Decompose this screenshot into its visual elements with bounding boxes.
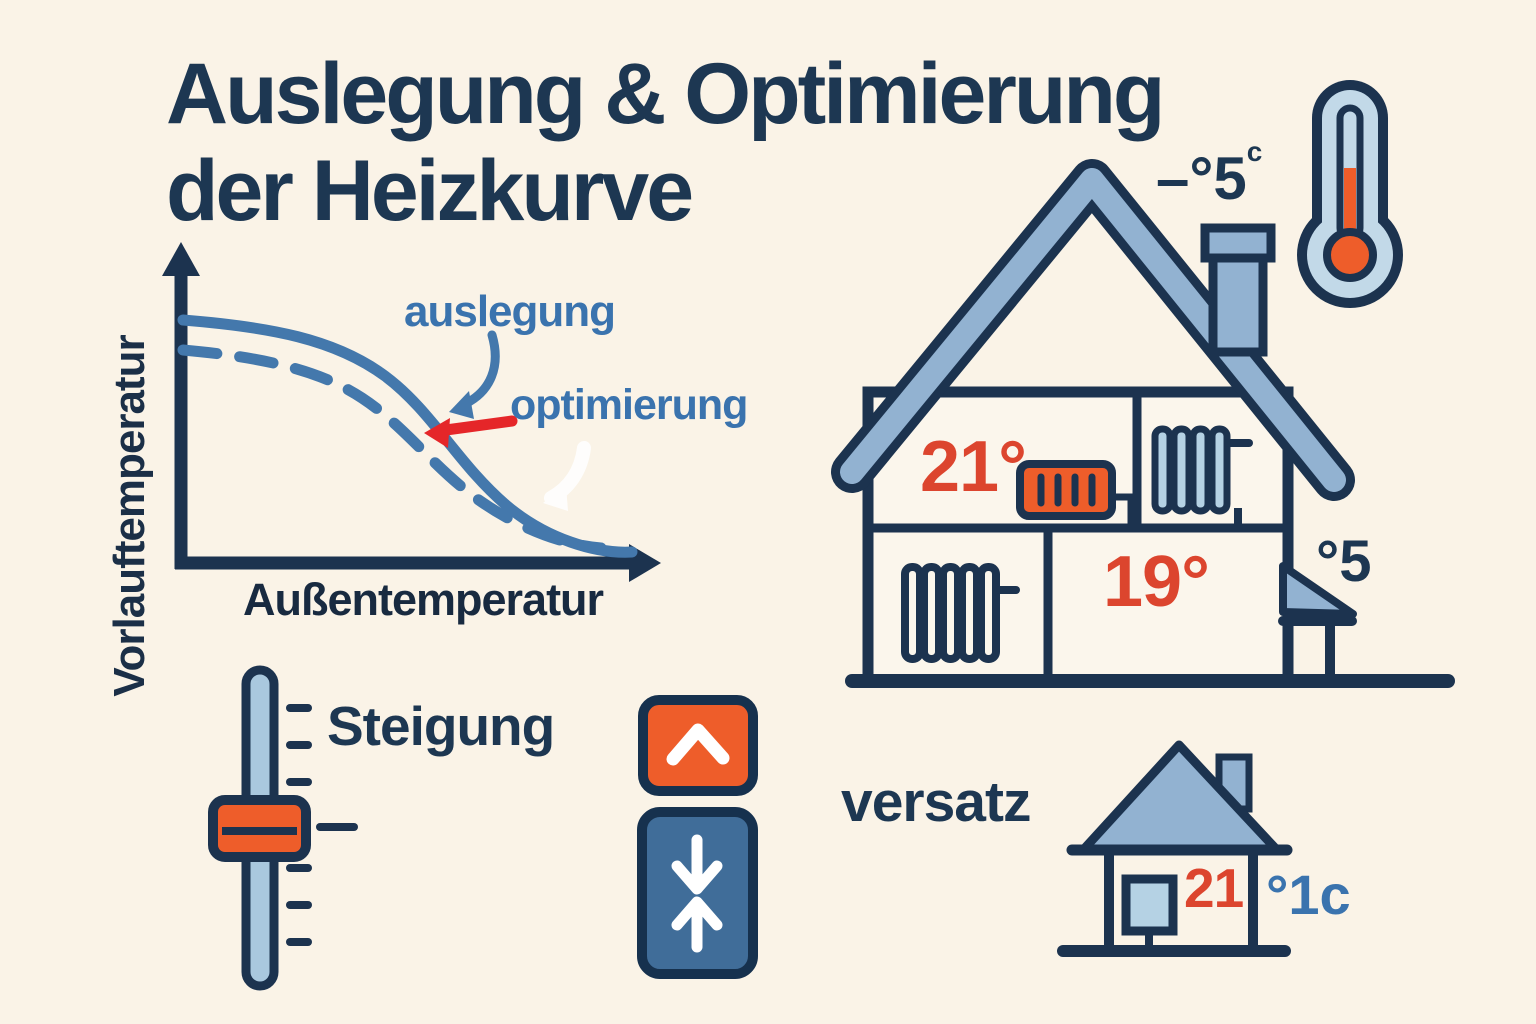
radiator-outline-icon xyxy=(905,567,1016,659)
chimney xyxy=(1205,228,1271,352)
downstairs-temp-label: 19° xyxy=(1103,541,1209,623)
curve-label-optimierung: optimierung xyxy=(510,381,747,430)
offset-button[interactable] xyxy=(642,812,753,974)
upstairs-temp-label: 21° xyxy=(920,426,1026,508)
outside-temp-unit: c xyxy=(1247,136,1263,167)
thermometer-icon xyxy=(1297,80,1403,308)
steigung-label: Steigung xyxy=(327,694,554,758)
increase-button[interactable] xyxy=(643,700,753,791)
curve-label-auslegung: auslegung xyxy=(404,287,615,337)
slider-handle[interactable] xyxy=(213,800,306,857)
offset-indoor-temp-label: 21 xyxy=(1184,856,1243,920)
outside-temp-label: –°5c xyxy=(1156,136,1262,213)
thermostat-icon xyxy=(1126,879,1173,950)
page-title: Auslegung & Optimierung der Heizkurve xyxy=(166,46,1162,240)
page-title-line1: Auslegung & Optimierung xyxy=(166,46,1162,143)
white-arrow xyxy=(543,448,584,511)
auslegung-pointer-arrow xyxy=(449,335,495,419)
page-title-line2: der Heizkurve xyxy=(166,143,1162,240)
y-axis-label: Vorlauftemperatur xyxy=(105,335,155,696)
x-axis-label: Außentemperatur xyxy=(243,574,603,626)
porch-temp-label: °5 xyxy=(1316,528,1371,595)
offset-value-label: °1c xyxy=(1266,862,1351,927)
versatz-label: versatz xyxy=(841,769,1030,835)
y-axis xyxy=(162,242,200,569)
infographic-canvas: Auslegung & Optimierung der Heizkurve Vo… xyxy=(0,0,1536,1024)
offset-house-illustration xyxy=(1063,745,1287,951)
